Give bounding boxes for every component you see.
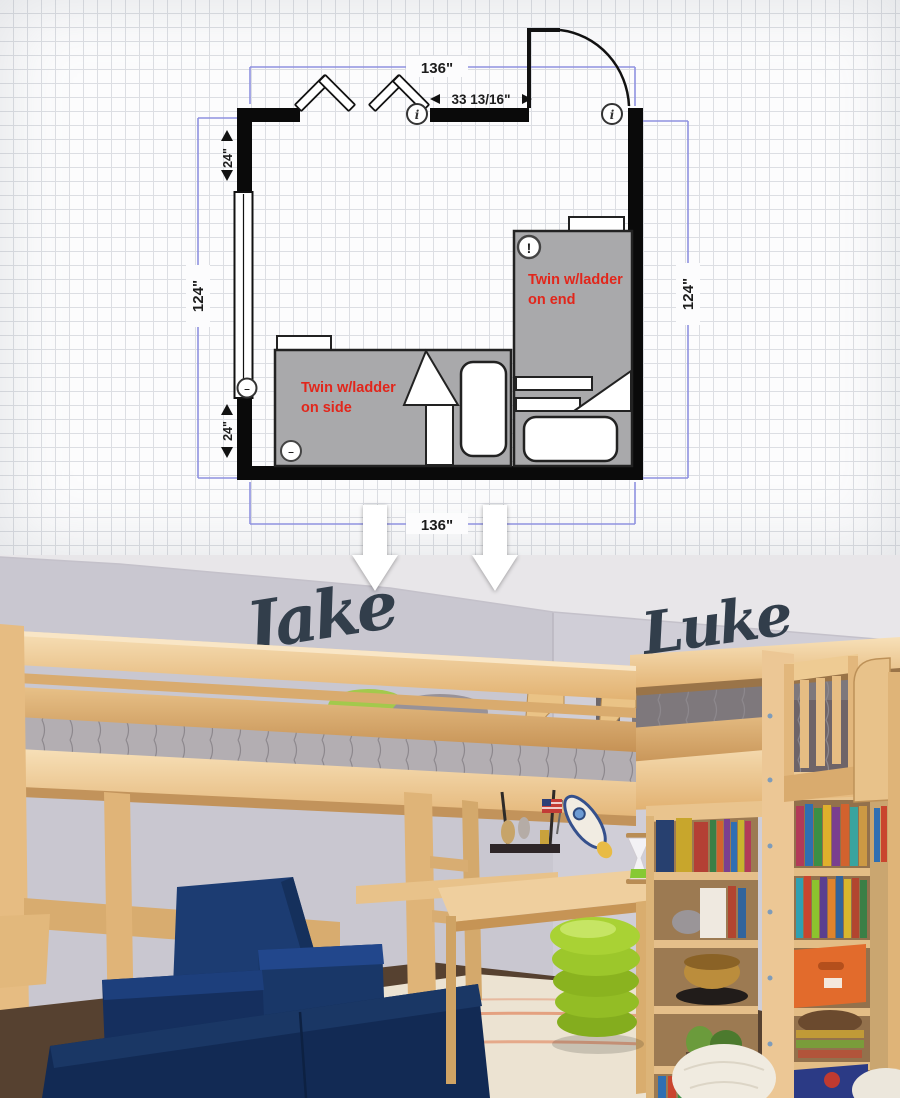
bed-side: – Twin w/ladder on side bbox=[275, 336, 511, 466]
warning-glyph: ! bbox=[527, 240, 532, 256]
hourglass-sand bbox=[630, 869, 648, 878]
down-arrow-icon bbox=[472, 505, 518, 591]
stool-shadow bbox=[552, 1034, 644, 1054]
left-window: – bbox=[235, 192, 257, 398]
screenshot: 136" 136" 124" 124" bbox=[0, 0, 900, 1098]
info-glyph: i bbox=[415, 108, 420, 122]
bed-side-label-line1: Twin w/ladder bbox=[301, 380, 396, 396]
blanket-edge bbox=[426, 405, 453, 465]
room-photo-svg: Jake Luke bbox=[0, 555, 900, 1098]
panel-slat bbox=[832, 676, 841, 764]
down-arrow-icon bbox=[352, 505, 398, 591]
dim-entry-label: 33 13/16" bbox=[452, 92, 511, 107]
window-symbol-left bbox=[295, 75, 355, 111]
arrow-shaft bbox=[363, 505, 387, 555]
dim-top-label: 136" bbox=[421, 60, 453, 77]
dimension-entry: 33 13/16" bbox=[430, 92, 532, 107]
shelf-side bbox=[646, 816, 654, 1098]
book-row bbox=[796, 876, 867, 938]
dim-right-label: 124" bbox=[680, 278, 697, 310]
bed-end-label-line1: Twin w/ladder bbox=[528, 272, 623, 288]
stool-highlight bbox=[560, 920, 616, 938]
owl-figurine bbox=[501, 820, 515, 844]
bed-side-label-line2: on side bbox=[301, 400, 352, 416]
rounded-headboard bbox=[854, 658, 890, 802]
dimension-bottom: 136" bbox=[250, 482, 635, 534]
trophy bbox=[540, 830, 549, 844]
flag-canton bbox=[542, 799, 551, 806]
dim-left-label: 124" bbox=[190, 280, 207, 312]
info-icon: i bbox=[602, 104, 622, 124]
arrow-head bbox=[352, 555, 398, 591]
bed-shelf bbox=[277, 336, 331, 350]
arrow-down-icon bbox=[221, 170, 233, 181]
bin-logo bbox=[824, 1072, 840, 1088]
shelf-board bbox=[794, 868, 870, 876]
window-sash bbox=[319, 75, 355, 111]
bunny-figurine bbox=[518, 817, 530, 839]
stacked-books bbox=[796, 1010, 864, 1058]
floor-plan: 136" 136" 124" 124" bbox=[0, 0, 900, 555]
bin-label bbox=[824, 978, 842, 988]
orange-bin bbox=[794, 944, 866, 1008]
wall-left-upper bbox=[237, 108, 252, 192]
window-handle-glyph: – bbox=[244, 384, 250, 395]
bookend bbox=[700, 888, 726, 938]
shelf-board bbox=[654, 940, 758, 948]
dimension-24-upper: 24" bbox=[221, 130, 235, 181]
bin-handle bbox=[818, 962, 844, 970]
board-games bbox=[656, 818, 708, 872]
elephant-figurine bbox=[672, 910, 704, 934]
arrow-left-icon bbox=[430, 94, 440, 104]
right-edge-post bbox=[888, 672, 900, 1098]
floor-plan-svg: 136" 136" 124" 124" bbox=[0, 0, 900, 555]
dim-24-lower-label: 24" bbox=[221, 421, 235, 441]
wall-bottom bbox=[237, 466, 643, 480]
dimension-24-lower: 24" bbox=[221, 404, 235, 458]
bowl-cushion bbox=[676, 987, 748, 1005]
wall-left-lower bbox=[237, 398, 252, 480]
info-glyph: i bbox=[610, 108, 615, 122]
wall-segment-entry bbox=[430, 108, 529, 122]
dim-bottom-label: 136" bbox=[421, 517, 453, 534]
blanket-edge bbox=[516, 377, 592, 390]
shelf-board bbox=[654, 872, 758, 880]
blanket-edge bbox=[516, 398, 580, 411]
bed-end: ! Twin w/ladder on end bbox=[514, 217, 632, 466]
pillow bbox=[461, 362, 506, 456]
panel-slat bbox=[816, 678, 825, 766]
dimension-right: 124" bbox=[643, 121, 700, 478]
panel-slat bbox=[800, 680, 809, 768]
arrow-up-icon bbox=[221, 404, 233, 415]
door-arc bbox=[560, 30, 629, 106]
bowl-rim bbox=[684, 954, 740, 970]
arrow-shaft bbox=[483, 505, 507, 555]
shelf-board bbox=[490, 844, 560, 853]
desk-leg bbox=[446, 916, 456, 1084]
arrow-up-icon bbox=[221, 130, 233, 141]
bed-shelf bbox=[569, 217, 624, 231]
room-photo: Jake Luke bbox=[0, 555, 900, 1098]
pillow bbox=[524, 417, 617, 461]
info-icon: i bbox=[407, 104, 427, 124]
corner-brace bbox=[0, 914, 50, 988]
handle-glyph: – bbox=[288, 447, 294, 458]
dim-24-upper-label: 24" bbox=[221, 148, 235, 168]
arrow-down-icon bbox=[221, 447, 233, 458]
shelf-board bbox=[654, 1006, 758, 1014]
bed-end-label-line2: on end bbox=[528, 292, 576, 308]
arrow-head bbox=[472, 555, 518, 591]
door-swing bbox=[529, 28, 629, 108]
